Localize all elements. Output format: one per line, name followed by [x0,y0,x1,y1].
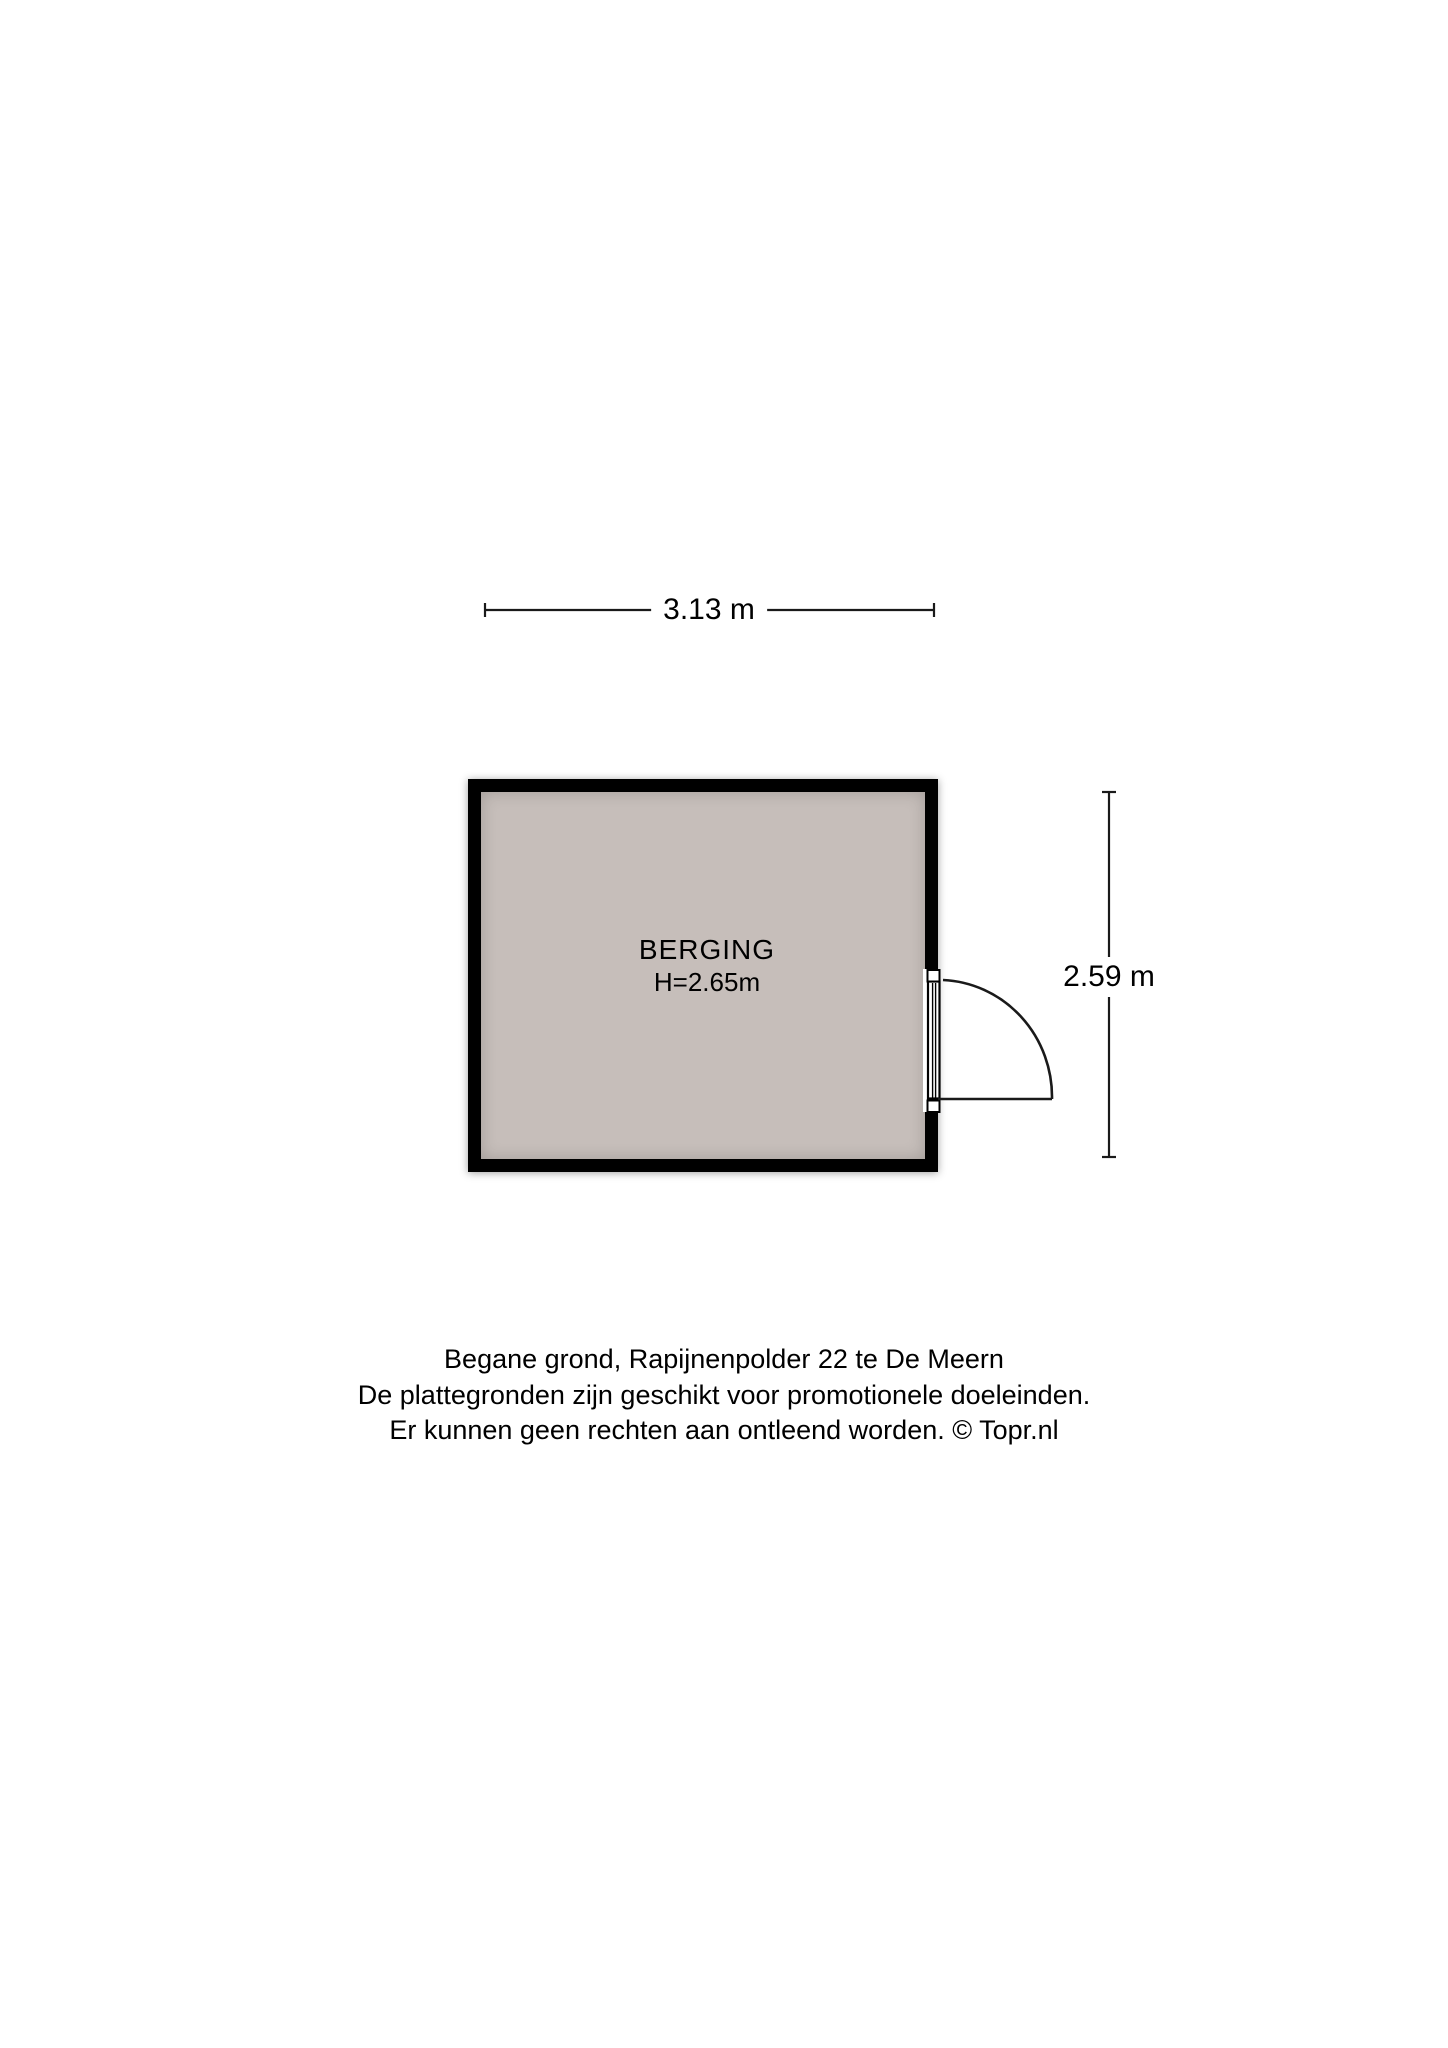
floorplan-page: 3.13 m BERGING H=2.65m [0,0,1448,2048]
floorplan-linework [0,0,1448,2048]
height-dimension-label: 2.59 m [1055,957,1163,997]
door-leaf [928,982,940,1099]
caption-line-1: Begane grond, Rapijnenpolder 22 te De Me… [0,1342,1448,1378]
caption-line-2: De plattegronden zijn geschikt voor prom… [0,1378,1448,1414]
door-swing-arc [938,980,1052,1099]
caption-line-3: Er kunnen geen rechten aan ontleend word… [0,1413,1448,1449]
door-jamb-top [928,970,940,982]
width-dimension-label: 3.13 m [651,593,767,627]
door-jamb-bottom [928,1101,940,1113]
caption: Begane grond, Rapijnenpolder 22 te De Me… [0,1342,1448,1449]
door [923,969,1052,1112]
